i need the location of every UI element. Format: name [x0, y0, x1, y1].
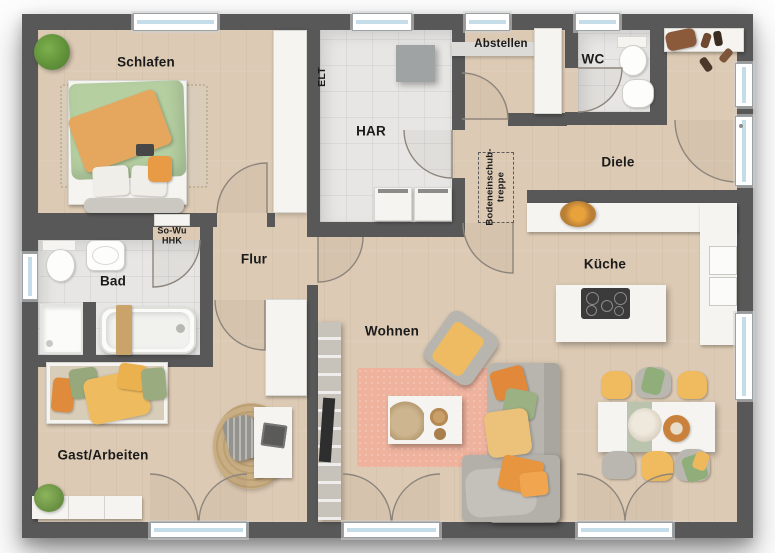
dryer-panel — [418, 189, 448, 193]
window-wc — [575, 13, 620, 31]
decor-bowl — [434, 428, 446, 440]
annotation-elt: ELT — [316, 67, 328, 87]
wall-har-bottom — [307, 222, 458, 237]
wall-shower-divider — [83, 302, 96, 355]
wall-har-left — [307, 30, 320, 237]
wall-wohnen-left — [307, 285, 318, 522]
ventilation-unit — [396, 45, 435, 82]
wall-wc-bottom — [565, 112, 667, 125]
storage-cabinet — [534, 28, 562, 114]
sideboard-divider — [104, 496, 105, 519]
toilet — [46, 249, 75, 282]
room-label-bad: Bad — [100, 274, 126, 289]
tablet — [136, 144, 154, 156]
window-har — [352, 13, 412, 31]
room-label-wc: WC — [582, 52, 605, 67]
annotation-heater-line1: So-Wu — [157, 226, 186, 236]
wall-bad-right — [200, 227, 213, 367]
fruit-bowl — [560, 201, 596, 227]
kitchen-sink — [709, 277, 737, 306]
wc-sink — [622, 79, 654, 108]
entry-door — [735, 116, 753, 186]
floor-plan-canvas: Schlafen HAR Abstellen WC Diele Bad Flur… — [0, 0, 775, 553]
dried-plant — [390, 400, 424, 440]
window-kueche — [735, 313, 753, 400]
bed-accent-pillow — [148, 156, 172, 182]
window-diele — [735, 63, 753, 107]
room-label-flur: Flur — [241, 252, 267, 267]
dining-chair — [602, 451, 635, 479]
window-abstellen — [465, 13, 510, 31]
room-label-diele: Diele — [601, 155, 634, 170]
annotation-attic-stairs-line1: Bodeneinschub- — [485, 148, 496, 225]
shower — [40, 304, 83, 354]
annotation-heater: So-Wu HHK — [157, 226, 186, 247]
daybed-pillow-green — [141, 367, 168, 401]
burner — [614, 306, 624, 316]
dining-chair — [641, 451, 673, 481]
room-label-kueche: Küche — [584, 257, 626, 272]
wall-schlafen-bottom — [38, 213, 217, 227]
wall-har-right-lower — [452, 178, 465, 237]
cooktop — [581, 288, 630, 319]
room-label-abstellen: Abstellen — [474, 38, 528, 50]
french-door-gast — [150, 522, 247, 538]
burner — [586, 292, 599, 305]
sofa-throw — [483, 407, 533, 459]
room-label-gast-arbeiten: Gast/Arbeiten — [57, 448, 148, 463]
laptop — [261, 422, 288, 448]
window-schlafen — [133, 13, 218, 31]
built-in-closet — [273, 30, 307, 213]
entry-door-handle — [739, 124, 743, 128]
wall-schlafen-stub — [267, 213, 275, 227]
toilet — [619, 45, 647, 76]
room-label-wohnen: Wohnen — [365, 324, 419, 339]
flower-bouquet — [628, 408, 662, 442]
potted-plant — [34, 484, 64, 512]
wall-abstellen-bottom — [508, 113, 567, 126]
hall-wardrobe — [265, 299, 307, 396]
wall-bad-top — [38, 227, 153, 240]
french-door-essen — [577, 522, 673, 538]
sink-basin — [92, 246, 119, 265]
room-label-har: HAR — [356, 124, 386, 139]
annotation-attic-stairs: Bodeneinschub- treppe — [485, 148, 508, 225]
bathtub-faucet — [176, 324, 185, 333]
sideboard-divider — [68, 496, 69, 519]
decor-wreath — [663, 415, 690, 442]
french-door-wohnen — [343, 522, 440, 538]
dining-chair — [601, 371, 631, 399]
annotation-attic-stairs-line2: treppe — [496, 148, 507, 225]
towel-radiator — [154, 214, 190, 226]
burner — [601, 300, 613, 312]
washing-machine-panel — [378, 189, 408, 193]
kitchen-sink — [709, 246, 737, 275]
annotation-heater-line2: HHK — [157, 236, 186, 246]
burner — [586, 305, 597, 316]
wall-wc-left — [565, 30, 578, 68]
bed-pillow — [92, 165, 130, 197]
window-bad — [22, 253, 38, 300]
burner — [614, 292, 627, 305]
shower-drain — [46, 340, 53, 347]
dining-chair — [677, 371, 707, 399]
wall-kueche-top — [527, 190, 737, 203]
potted-plant — [34, 34, 70, 70]
bed-bench — [84, 198, 184, 213]
decor-bowl — [430, 408, 448, 426]
bathtub-caddy — [116, 305, 132, 355]
sofa-pillow-orange — [519, 471, 549, 498]
room-label-schlafen: Schlafen — [117, 55, 175, 70]
